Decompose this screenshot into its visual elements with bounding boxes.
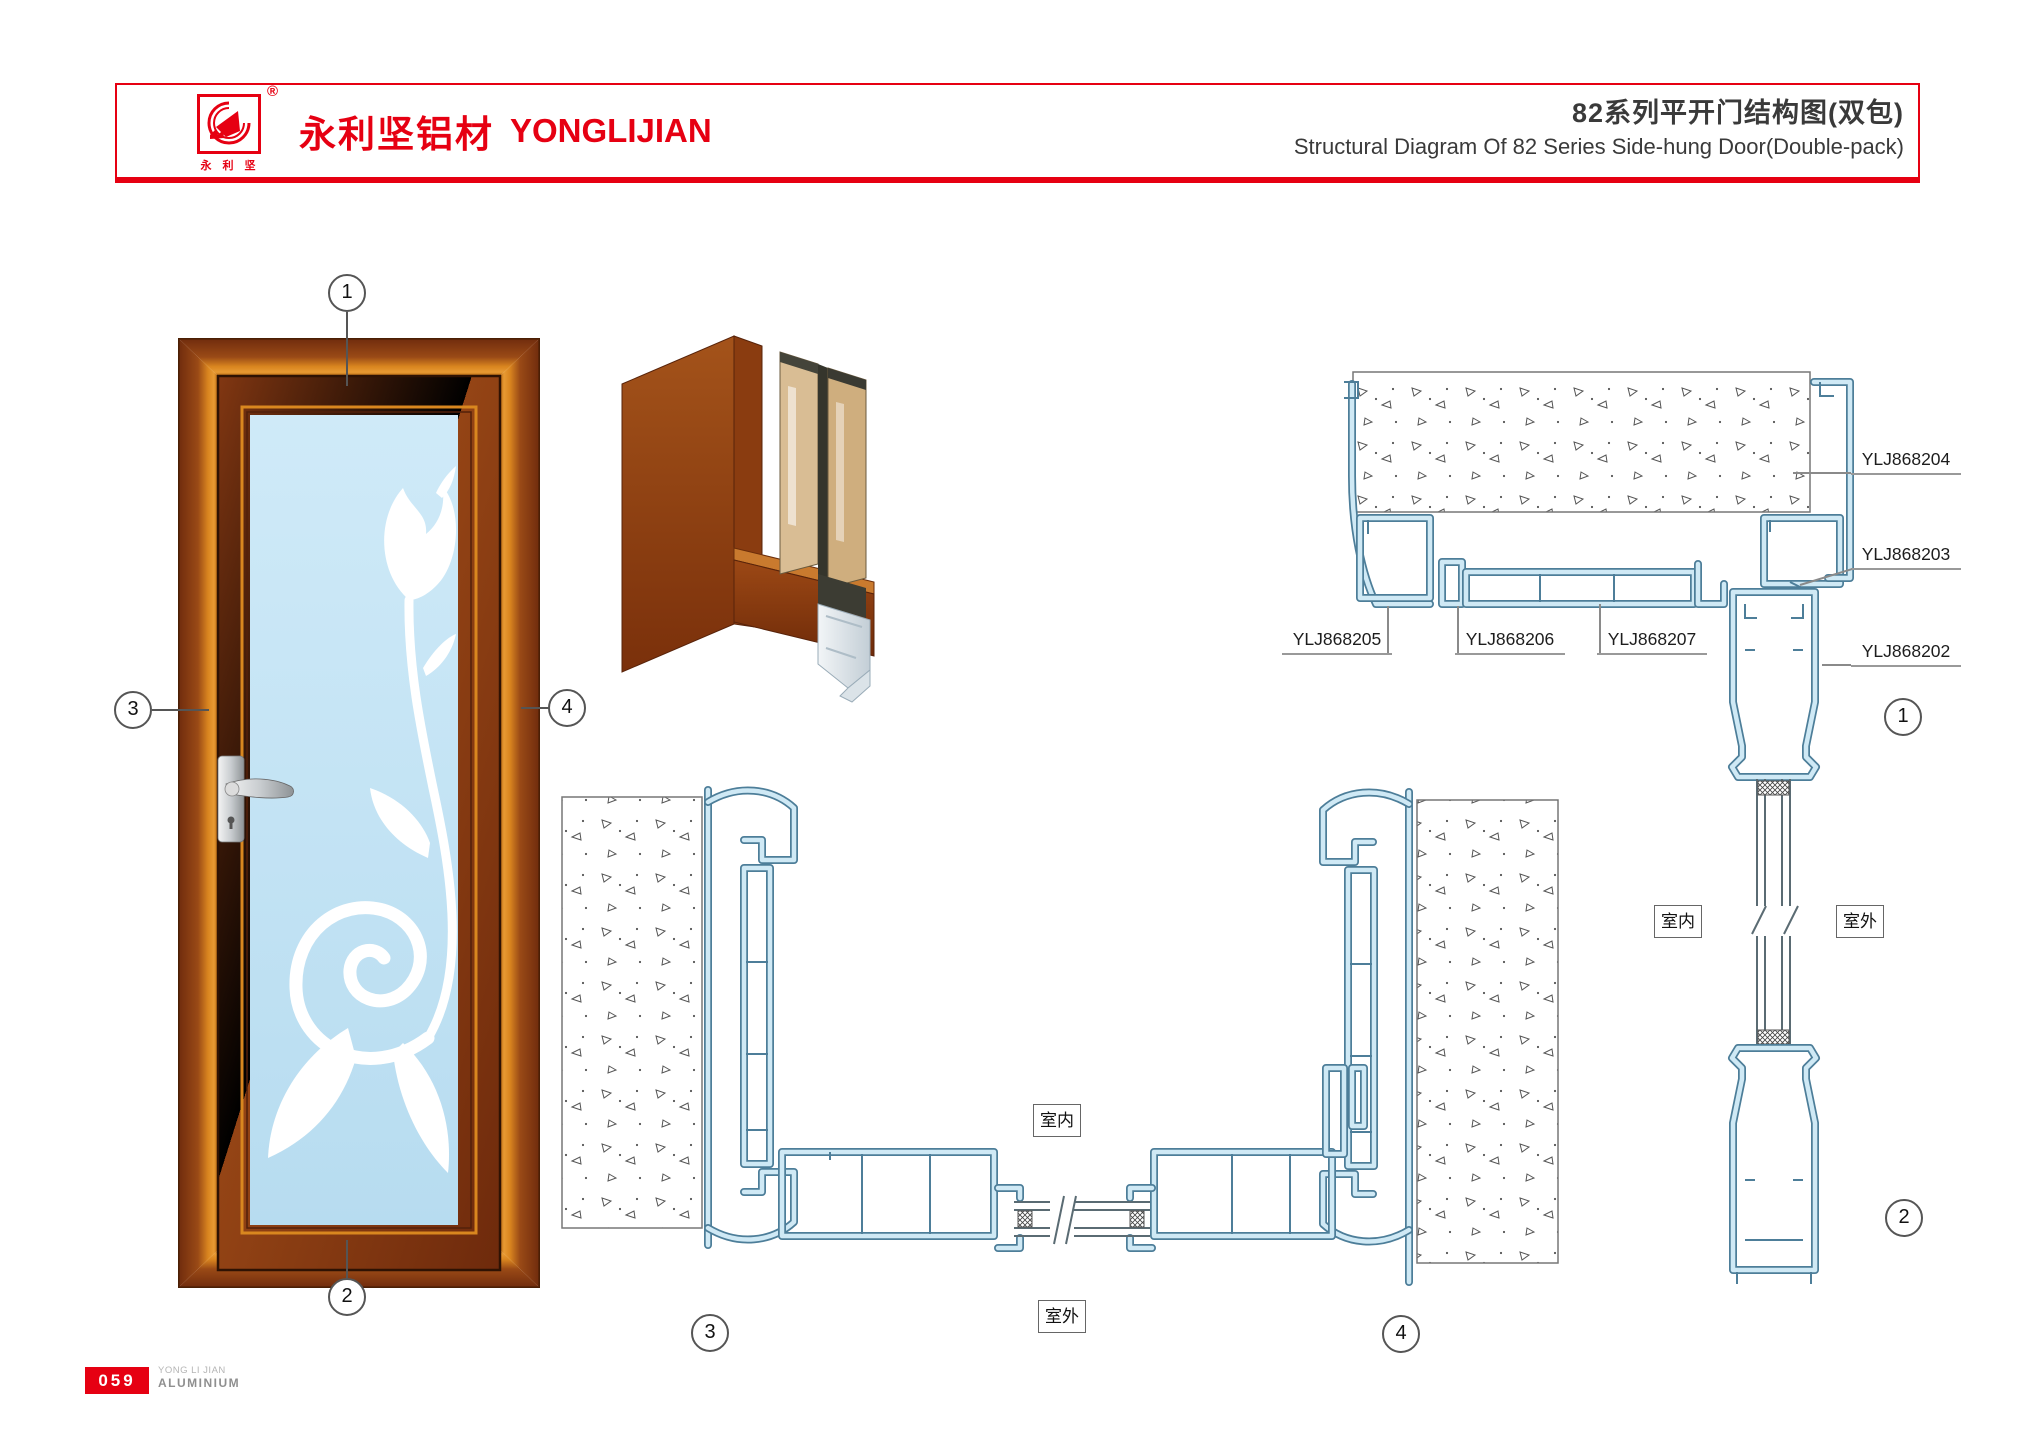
callout-4-section: 4 bbox=[1382, 1315, 1420, 1353]
vertical-section-drawing bbox=[1732, 592, 1816, 1284]
footer-brand-line2: ALUMINIUM bbox=[158, 1377, 240, 1391]
page-title-en: Structural Diagram Of 82 Series Side-hun… bbox=[1294, 134, 1904, 160]
page-title: 82系列平开门结构图(双包) Structural Diagram Of 82 … bbox=[1294, 91, 1904, 160]
callout-1-section: 1 bbox=[1884, 698, 1922, 736]
callout-2-section: 2 bbox=[1885, 1199, 1923, 1237]
callout-3-door: 3 bbox=[114, 691, 152, 729]
registered-mark: ® bbox=[267, 83, 278, 100]
callout-3-section: 3 bbox=[691, 1314, 729, 1352]
technical-drawing-canvas bbox=[0, 0, 2027, 1455]
page-title-cn: 82系列平开门结构图(双包) bbox=[1294, 91, 1904, 130]
part-label-ylj868206: YLJ868206 bbox=[1455, 629, 1565, 655]
brand-name-en: YONGLIJIAN bbox=[510, 112, 712, 150]
callout-4-door: 4 bbox=[548, 689, 586, 727]
leader-line-205 bbox=[1387, 606, 1389, 653]
page-number-badge: 059 bbox=[85, 1367, 149, 1394]
catalog-page: ® 永 利 坚 永利坚铝材 YONGLIJIAN 82系列平开门结构图(双包) … bbox=[0, 0, 2027, 1455]
left-jamb-section-drawing bbox=[562, 790, 1020, 1248]
brand-name-cn: 永利坚铝材 bbox=[299, 104, 494, 158]
brand-logo bbox=[197, 94, 261, 154]
part-label-ylj868203: YLJ868203 bbox=[1851, 544, 1961, 570]
leader-line-204 bbox=[1793, 472, 1851, 474]
outdoor-label-vertical: 室外 bbox=[1836, 905, 1884, 938]
page-header: ® 永 利 坚 永利坚铝材 YONGLIJIAN 82系列平开门结构图(双包) … bbox=[115, 83, 1920, 183]
logo-swirl-icon bbox=[200, 97, 258, 151]
callout-2-door: 2 bbox=[328, 1278, 366, 1316]
head-section-drawing bbox=[1344, 372, 1850, 604]
part-label-ylj868204: YLJ868204 bbox=[1851, 449, 1961, 475]
door-photo bbox=[178, 338, 540, 1288]
right-jamb-section-drawing bbox=[1130, 792, 1558, 1282]
profile-corner-sample bbox=[622, 336, 874, 702]
brand-lockup: 永利坚铝材 YONGLIJIAN bbox=[299, 85, 712, 177]
callout-line-2-door bbox=[346, 1240, 348, 1279]
callout-line-3-door bbox=[152, 709, 209, 711]
horizontal-glass bbox=[1014, 1196, 1150, 1244]
callout-line-4-door bbox=[521, 707, 549, 709]
leader-line-202 bbox=[1822, 664, 1851, 666]
part-label-ylj868202: YLJ868202 bbox=[1851, 641, 1961, 667]
logo-characters: 永 利 坚 bbox=[189, 157, 271, 173]
part-label-ylj868207: YLJ868207 bbox=[1597, 629, 1707, 655]
callout-1-door: 1 bbox=[328, 274, 366, 312]
footer-brand: YONG LI JIAN ALUMINIUM bbox=[158, 1366, 240, 1391]
indoor-label-vertical: 室内 bbox=[1654, 905, 1702, 938]
leader-line-207 bbox=[1599, 604, 1601, 653]
leader-line-206 bbox=[1457, 606, 1459, 653]
indoor-label-horizontal: 室内 bbox=[1033, 1104, 1081, 1137]
part-label-ylj868205: YLJ868205 bbox=[1282, 629, 1392, 655]
callout-line-1-door bbox=[346, 312, 348, 386]
outdoor-label-horizontal: 室外 bbox=[1038, 1300, 1086, 1333]
